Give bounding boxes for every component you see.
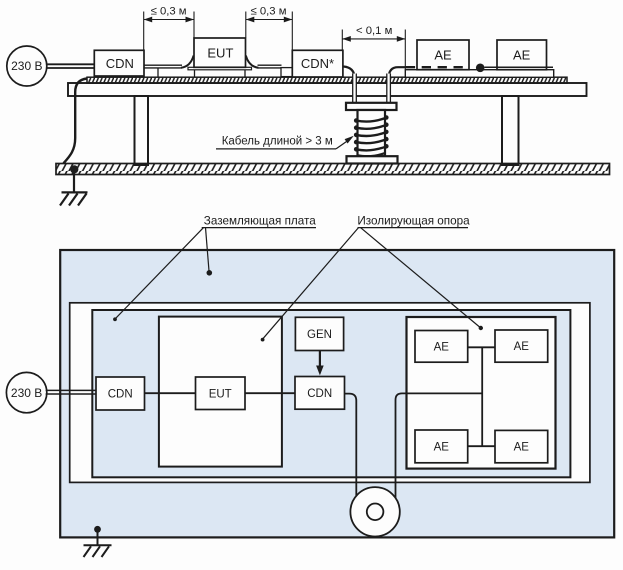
svg-text:EUT: EUT	[209, 388, 232, 400]
svg-text:AE: AE	[514, 341, 530, 353]
svg-text:Изолирующая опора: Изолирующая опора	[357, 214, 470, 227]
svg-text:AE: AE	[514, 442, 530, 454]
svg-text:Кабель длиной > 3 м: Кабель длиной > 3 м	[222, 136, 333, 148]
svg-text:GEN: GEN	[307, 329, 332, 341]
svg-text:AE: AE	[434, 441, 450, 453]
svg-text:< 0,1 м: < 0,1 м	[356, 25, 392, 37]
svg-text:CDN: CDN	[108, 389, 133, 401]
svg-text:≤ 0,3 м: ≤ 0,3 м	[251, 6, 287, 18]
svg-text:EUT: EUT	[207, 46, 233, 61]
svg-text:Заземляющая плата: Заземляющая плата	[204, 214, 316, 227]
svg-text:CDN: CDN	[106, 56, 134, 71]
svg-text:230 В: 230 В	[11, 59, 42, 73]
svg-text:CDN: CDN	[307, 388, 332, 400]
svg-text:AE: AE	[434, 341, 450, 353]
svg-text:≤ 0,3 м: ≤ 0,3 м	[151, 6, 187, 18]
svg-text:AE: AE	[513, 48, 531, 63]
svg-text:AE: AE	[434, 48, 452, 63]
svg-text:CDN*: CDN*	[301, 56, 334, 71]
svg-text:230 В: 230 В	[11, 386, 42, 400]
